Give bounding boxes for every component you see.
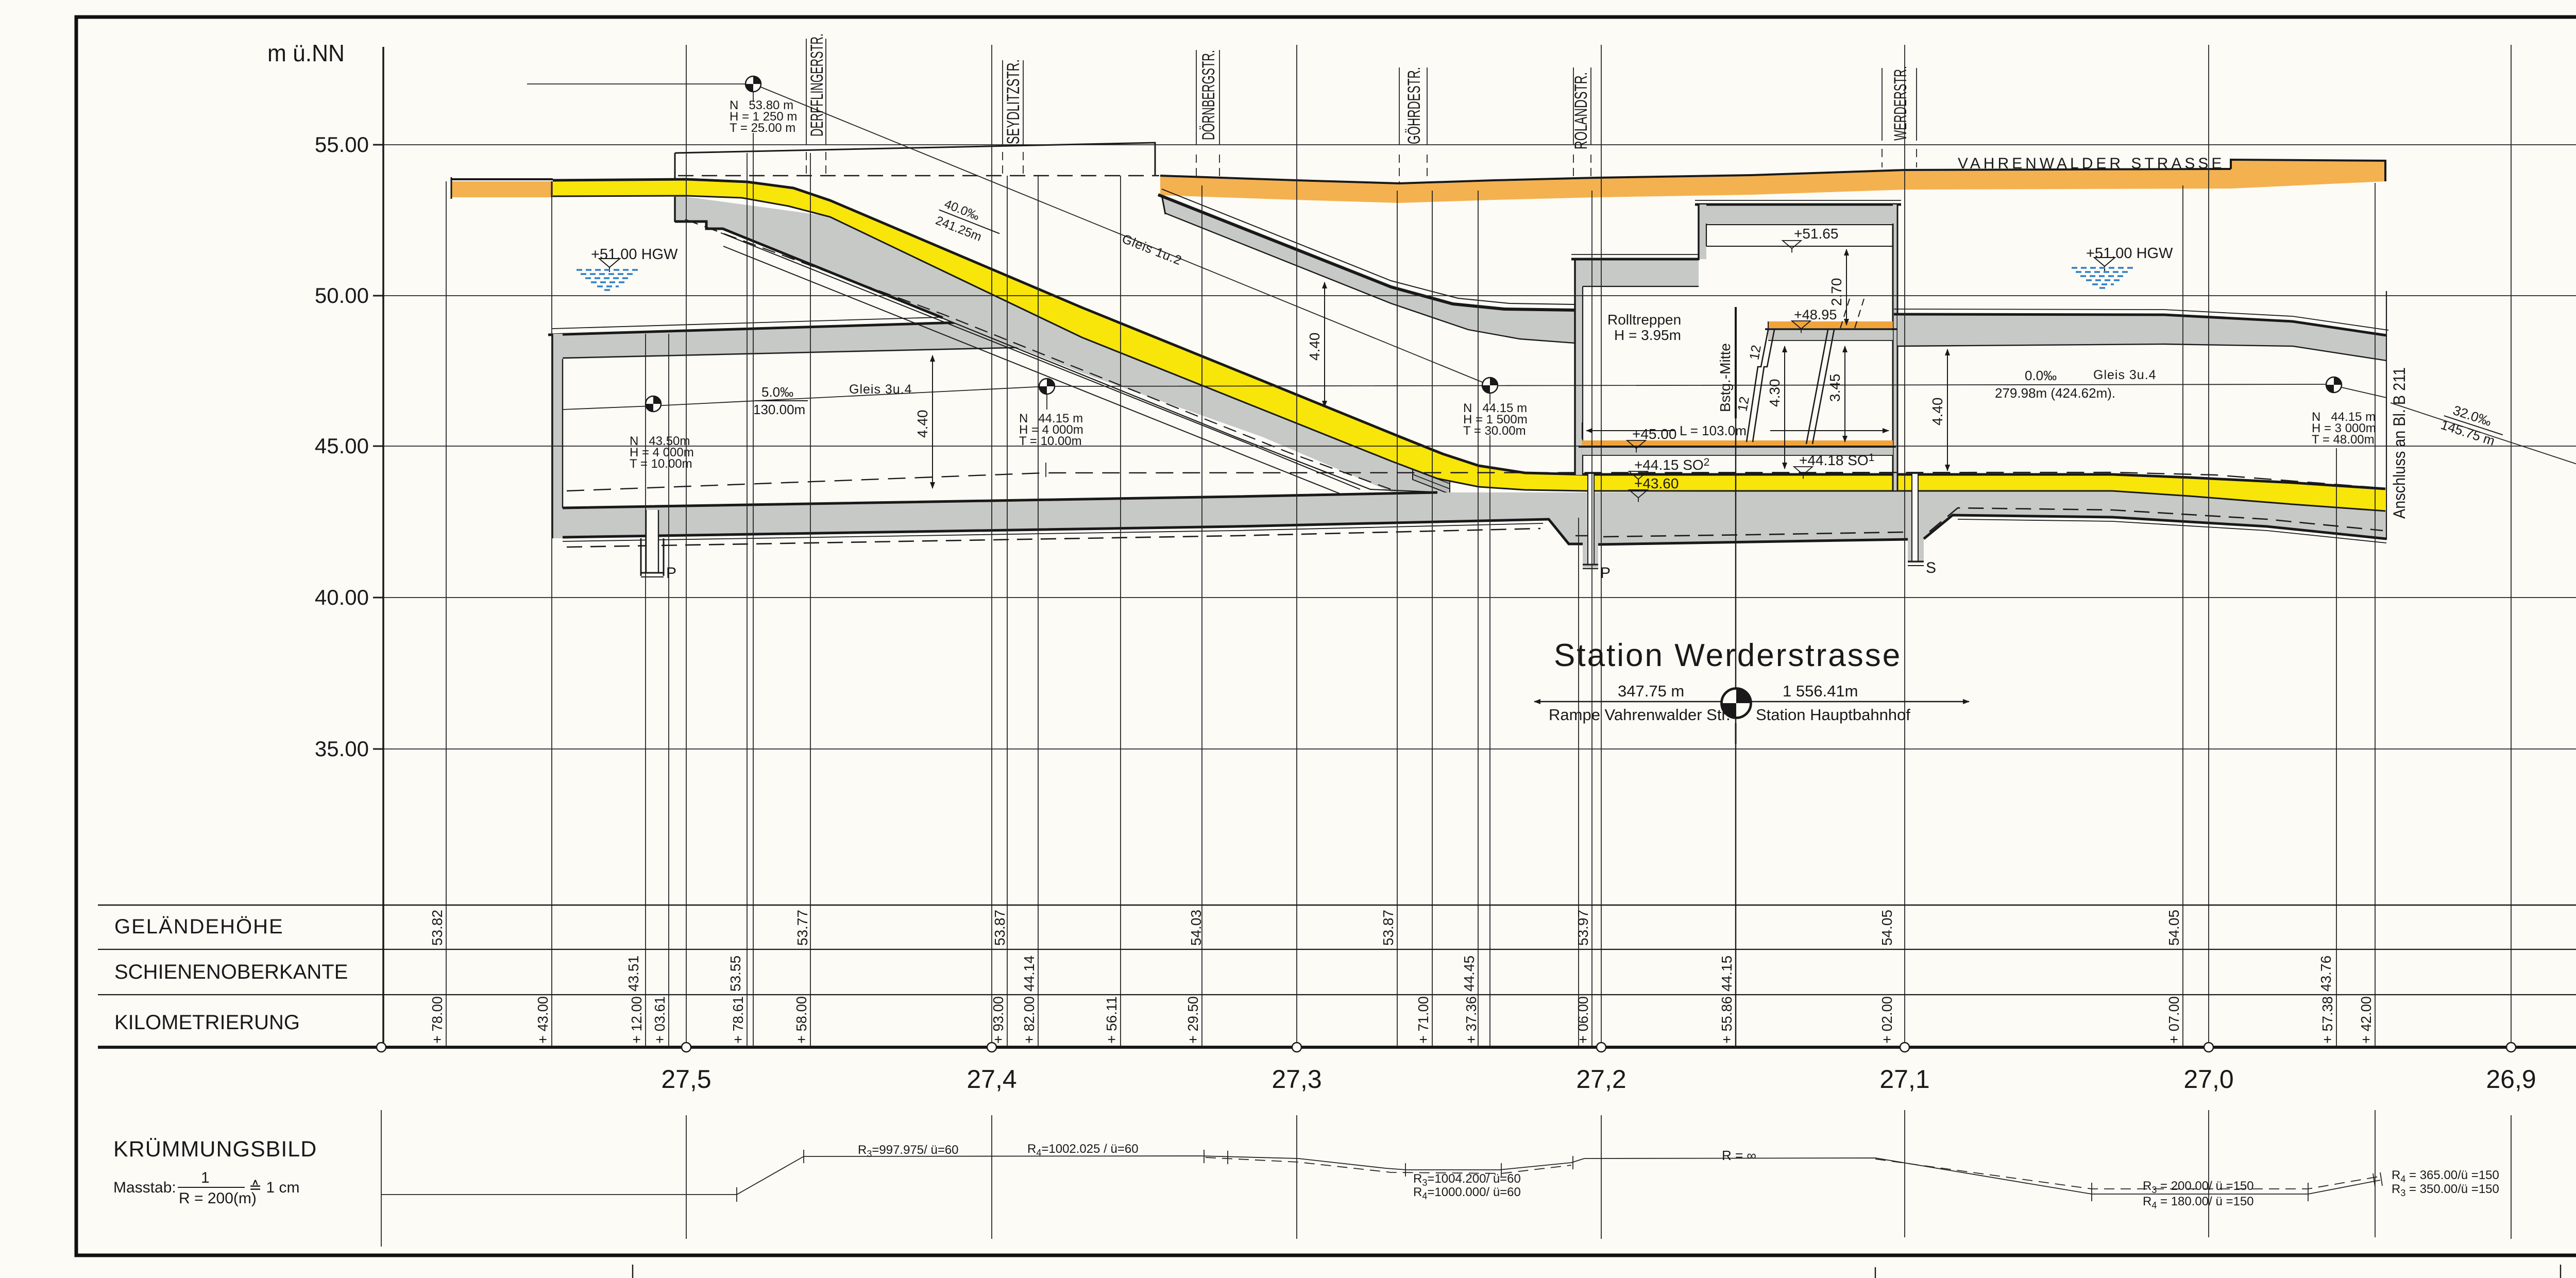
svg-text:1 556.41m: 1 556.41m [1783, 682, 1858, 700]
svg-text:+ 29.50: + 29.50 [1185, 996, 1201, 1044]
svg-text:Gleis 3u.4: Gleis 3u.4 [2093, 368, 2157, 382]
svg-text:54.03: 54.03 [1188, 910, 1204, 946]
svg-text:+ 06.00: + 06.00 [1575, 996, 1591, 1044]
svg-text:50.00: 50.00 [315, 283, 369, 308]
svg-text:ROLANDSTR.: ROLANDSTR. [1571, 72, 1591, 149]
svg-text:4.40: 4.40 [914, 410, 930, 438]
svg-text:0.0‰: 0.0‰ [2025, 368, 2057, 383]
svg-text:T = 10.00m: T = 10.00m [1019, 434, 1082, 448]
svg-text:Gleis 3u.4: Gleis 3u.4 [849, 382, 912, 397]
svg-text:53.97: 53.97 [1575, 910, 1591, 946]
svg-text:P: P [1600, 565, 1611, 582]
svg-text:1: 1 [201, 1169, 210, 1186]
svg-text:12: 12 [1734, 395, 1752, 413]
svg-text:+ 78.61: + 78.61 [730, 996, 746, 1044]
svg-text:T = 48.00m: T = 48.00m [2312, 433, 2375, 447]
svg-text:R = 200(m): R = 200(m) [179, 1190, 257, 1207]
svg-text:Rolltreppen: Rolltreppen [1607, 312, 1681, 328]
svg-text:VAHRENWALDER STRASSE: VAHRENWALDER STRASSE [1958, 155, 2225, 172]
svg-text:R4 = 180.00/ ü =150: R4 = 180.00/ ü =150 [2143, 1195, 2254, 1211]
svg-text:44.15: 44.15 [1719, 956, 1735, 992]
svg-text:DERFFLINGERSTR.: DERFFLINGERSTR. [807, 33, 827, 137]
svg-text:+ 78.00: + 78.00 [429, 996, 445, 1044]
svg-text:R4=1000.000/ ü=60: R4=1000.000/ ü=60 [1413, 1185, 1521, 1201]
svg-text:45.00: 45.00 [315, 434, 369, 458]
svg-text:43.76: 43.76 [2318, 956, 2334, 992]
svg-text:4.30: 4.30 [1767, 379, 1783, 407]
svg-text:m ü.NN: m ü.NN [267, 40, 345, 66]
svg-text:+ 03.61: + 03.61 [652, 996, 668, 1044]
svg-text:2.70: 2.70 [1828, 278, 1844, 306]
svg-text:+51.65: +51.65 [1794, 226, 1838, 242]
svg-text:R4=1002.025 / ü=60: R4=1002.025 / ü=60 [1027, 1142, 1139, 1158]
svg-text:53.87: 53.87 [992, 910, 1008, 946]
svg-text:+ 02.00: + 02.00 [1879, 996, 1895, 1044]
svg-text:R = ∞: R = ∞ [1722, 1148, 1756, 1163]
svg-text:+45.00: +45.00 [1632, 426, 1676, 442]
svg-text:SCHIENENOBERKANTE: SCHIENENOBERKANTE [114, 961, 348, 983]
svg-text:SEYDLITZSTR.: SEYDLITZSTR. [1004, 59, 1023, 144]
svg-text:53.55: 53.55 [727, 956, 743, 992]
svg-text:130.00m: 130.00m [753, 402, 805, 417]
svg-text:+ 56.11: + 56.11 [1104, 996, 1120, 1044]
svg-text:R3 = 200.00/ ü =150: R3 = 200.00/ ü =150 [2143, 1179, 2254, 1195]
svg-text:KRÜMMUNGSBILD: KRÜMMUNGSBILD [113, 1137, 317, 1162]
svg-text:R3 = 350.00/ü =150: R3 = 350.00/ü =150 [2392, 1182, 2499, 1198]
svg-text:Bstg.-Mitte: Bstg.-Mitte [1717, 343, 1733, 412]
svg-text:R3=997.975/ ü=60: R3=997.975/ ü=60 [858, 1143, 959, 1159]
svg-text:+ 37.36: + 37.36 [1463, 996, 1479, 1044]
svg-text:27,3: 27,3 [1272, 1065, 1321, 1094]
svg-text:4.40: 4.40 [1307, 333, 1323, 361]
svg-text:43.51: 43.51 [625, 956, 641, 992]
svg-text:27,0: 27,0 [2183, 1065, 2233, 1094]
svg-text:44.45: 44.45 [1461, 956, 1477, 992]
svg-text:+ 42.00: + 42.00 [2358, 996, 2374, 1044]
svg-text:+ 57.38: + 57.38 [2319, 996, 2335, 1044]
svg-text:40.00: 40.00 [315, 585, 369, 609]
svg-text:+44.15 SO2: +44.15 SO2 [1634, 456, 1709, 473]
svg-text:Rampe Vahrenwalder Str.: Rampe Vahrenwalder Str. [1549, 706, 1731, 724]
svg-text:+ 58.00: + 58.00 [793, 996, 809, 1044]
svg-text:GELÄNDEHÖHE: GELÄNDEHÖHE [114, 915, 284, 938]
svg-text:+ 82.00: + 82.00 [1021, 996, 1037, 1044]
svg-text:T = 25.00 m: T = 25.00 m [730, 121, 795, 135]
svg-text:+51.00 HGW: +51.00 HGW [2086, 245, 2173, 262]
svg-text:Station Hauptbahnhof: Station Hauptbahnhof [1756, 706, 1910, 724]
svg-text:WERDERSTR.: WERDERSTR. [1891, 66, 1910, 141]
svg-text:Anschluss an Bl. B 211: Anschluss an Bl. B 211 [2390, 367, 2409, 519]
svg-text:+43.60: +43.60 [1634, 475, 1679, 491]
svg-text:+ 71.00: + 71.00 [1415, 996, 1431, 1044]
svg-text:DÖRNBERGSTR.: DÖRNBERGSTR. [1199, 50, 1218, 140]
svg-text:+ 55.86: + 55.86 [1719, 996, 1735, 1044]
svg-text:5.0‰: 5.0‰ [761, 384, 793, 400]
svg-text:+48.95: +48.95 [1794, 307, 1837, 322]
svg-text:54.05: 54.05 [1879, 910, 1895, 946]
svg-text:+ 93.00: + 93.00 [990, 996, 1006, 1044]
svg-text:Station Werderstrasse: Station Werderstrasse [1554, 638, 1902, 673]
svg-text:53.87: 53.87 [1380, 910, 1396, 946]
svg-text:H = 3.95m: H = 3.95m [1614, 327, 1681, 343]
svg-text:P: P [666, 565, 676, 582]
svg-text:+ 43.00: + 43.00 [535, 996, 551, 1044]
svg-text:53.77: 53.77 [794, 910, 810, 946]
svg-text:+ 07.00: + 07.00 [2166, 996, 2182, 1044]
svg-text:Masstab:: Masstab: [113, 1179, 176, 1196]
svg-text:27,4: 27,4 [967, 1065, 1016, 1094]
svg-text:≙ 1 cm: ≙ 1 cm [249, 1179, 299, 1196]
svg-text:T = 30.00m: T = 30.00m [1463, 424, 1526, 438]
svg-text:27,1: 27,1 [1879, 1065, 1929, 1094]
svg-text:L = 103.0m: L = 103.0m [1680, 423, 1747, 438]
svg-text:347.75 m: 347.75 m [1618, 682, 1684, 700]
svg-text:4.40: 4.40 [1929, 398, 1945, 426]
svg-text:26,9: 26,9 [2486, 1065, 2536, 1094]
svg-text:12: 12 [1746, 344, 1764, 361]
svg-text:35.00: 35.00 [315, 737, 369, 761]
svg-text:+44.18 SO1: +44.18 SO1 [1799, 452, 1874, 468]
svg-text:54.05: 54.05 [2166, 910, 2182, 946]
svg-text:44.14: 44.14 [1021, 956, 1037, 992]
svg-text:+ 12.00: + 12.00 [629, 996, 645, 1044]
svg-text:3.45: 3.45 [1827, 374, 1843, 402]
svg-text:S: S [1926, 559, 1936, 576]
svg-text:GÖHRDESTR.: GÖHRDESTR. [1404, 67, 1424, 144]
svg-text:27,2: 27,2 [1576, 1065, 1626, 1094]
svg-text:55.00: 55.00 [315, 132, 369, 157]
svg-text:KILOMETRIERUNG: KILOMETRIERUNG [114, 1011, 300, 1034]
svg-text:53.82: 53.82 [429, 910, 445, 946]
svg-text:T = 10.00m: T = 10.00m [630, 457, 692, 471]
svg-text:279.98m (424.62m).: 279.98m (424.62m). [1995, 385, 2115, 401]
svg-text:27,5: 27,5 [661, 1065, 711, 1094]
svg-text:+51.00 HGW: +51.00 HGW [591, 246, 678, 263]
